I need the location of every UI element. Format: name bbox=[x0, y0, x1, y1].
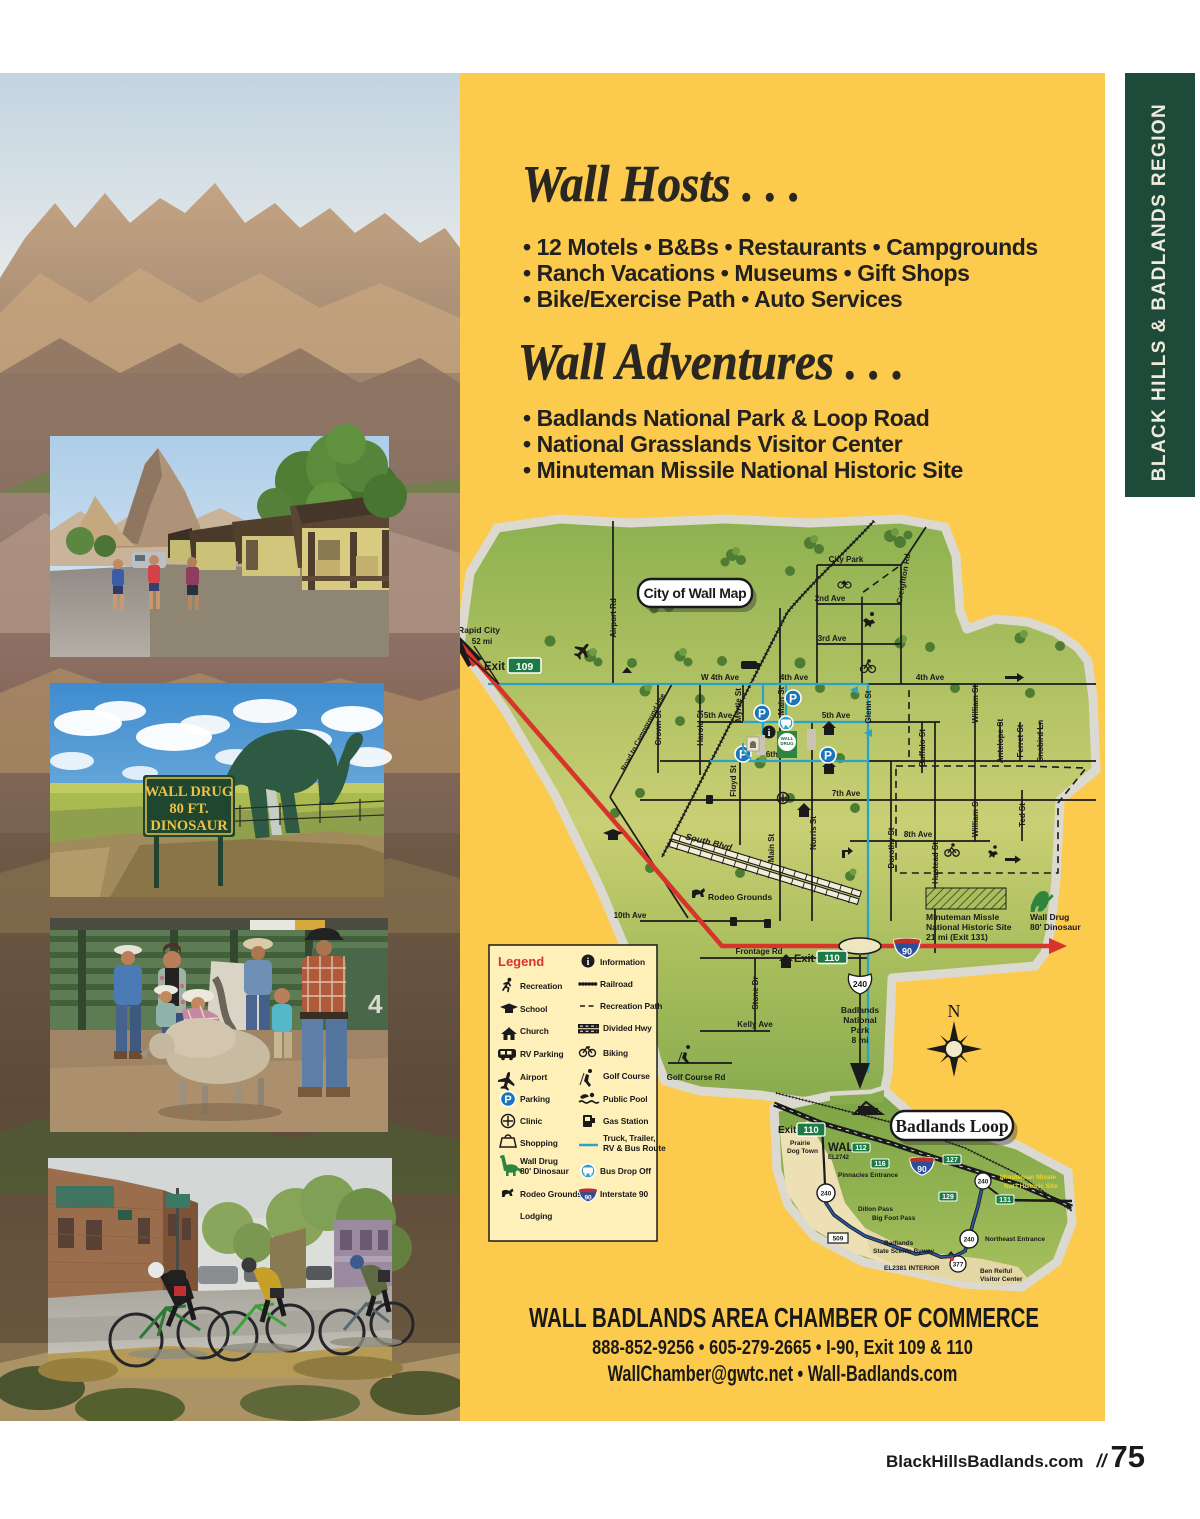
svg-text:RV Parking: RV Parking bbox=[520, 1049, 564, 1059]
svg-text:Gas Station: Gas Station bbox=[603, 1116, 648, 1126]
svg-text:Rapid City: Rapid City bbox=[460, 625, 500, 635]
svg-text:240: 240 bbox=[853, 979, 867, 989]
svg-text:Prairie: Prairie bbox=[790, 1140, 811, 1147]
svg-text:Legend: Legend bbox=[498, 954, 544, 969]
svg-text:8 mi: 8 mi bbox=[851, 1035, 868, 1045]
svg-text:Myrtle St: Myrtle St bbox=[734, 688, 743, 722]
svg-text:80' Dinosaur: 80' Dinosaur bbox=[1030, 922, 1081, 932]
svg-text:Railroad: Railroad bbox=[600, 979, 633, 989]
svg-text:4th Ave: 4th Ave bbox=[780, 673, 809, 682]
svg-text:Antelope St: Antelope St bbox=[996, 718, 1005, 763]
svg-text:Norris St: Norris St bbox=[809, 816, 818, 850]
svg-text:Golf Course: Golf Course bbox=[603, 1071, 650, 1081]
svg-text:240: 240 bbox=[978, 1179, 989, 1186]
svg-text:90: 90 bbox=[917, 1164, 927, 1174]
svg-text:Rodeo Grounds: Rodeo Grounds bbox=[708, 892, 772, 902]
svg-text:Nat'l Historic Site: Nat'l Historic Site bbox=[1004, 1183, 1058, 1190]
svg-text:Buffalo St: Buffalo St bbox=[918, 729, 927, 767]
svg-text:Frontage Rd: Frontage Rd bbox=[735, 947, 782, 956]
svg-text:State Scenic Byway: State Scenic Byway bbox=[873, 1248, 934, 1255]
svg-text:Main St: Main St bbox=[777, 686, 786, 715]
svg-text:8th Ave: 8th Ave bbox=[904, 830, 933, 839]
svg-text:Exit: Exit bbox=[778, 1125, 797, 1136]
svg-text:Rodeo Grounds: Rodeo Grounds bbox=[520, 1189, 582, 1199]
svg-text:110: 110 bbox=[803, 1125, 818, 1136]
svg-text:i: i bbox=[768, 728, 771, 739]
svg-text:Stone Dr: Stone Dr bbox=[751, 976, 760, 1009]
svg-text:127: 127 bbox=[946, 1157, 958, 1164]
svg-text:Airport: Airport bbox=[520, 1072, 548, 1082]
svg-text:Snobird Ln: Snobird Ln bbox=[1036, 720, 1045, 762]
svg-text:Bus Drop Off: Bus Drop Off bbox=[600, 1166, 651, 1176]
svg-text:377: 377 bbox=[953, 1262, 964, 1269]
svg-text:Golf Course Rd: Golf Course Rd bbox=[667, 1073, 726, 1082]
svg-text:DINOSAUR: DINOSAUR bbox=[150, 818, 228, 834]
svg-text:240: 240 bbox=[821, 1191, 832, 1198]
svg-text:Parking: Parking bbox=[520, 1094, 550, 1104]
svg-text:Kelly Ave: Kelly Ave bbox=[737, 1020, 773, 1029]
svg-text:5th Ave: 5th Ave bbox=[822, 711, 851, 720]
svg-text:Northeast Entrance: Northeast Entrance bbox=[985, 1236, 1045, 1243]
svg-text:Badlands Loop: Badlands Loop bbox=[895, 1116, 1009, 1136]
svg-text:William St: William St bbox=[971, 685, 980, 723]
svg-text:7th Ave: 7th Ave bbox=[832, 789, 861, 798]
svg-text:112: 112 bbox=[855, 1145, 866, 1152]
svg-text:240: 240 bbox=[964, 1237, 975, 1244]
svg-text:10th Ave: 10th Ave bbox=[614, 911, 647, 920]
svg-text:EL2381 INTERIOR: EL2381 INTERIOR bbox=[884, 1265, 940, 1272]
svg-text:80 FT.: 80 FT. bbox=[169, 801, 208, 817]
svg-text:3rd Ave: 3rd Ave bbox=[818, 634, 847, 643]
svg-text:WALL DRUG: WALL DRUG bbox=[145, 784, 233, 800]
svg-text:Ben Reiful: Ben Reiful bbox=[980, 1268, 1012, 1275]
svg-text:Park: Park bbox=[851, 1025, 870, 1035]
svg-text:4: 4 bbox=[368, 989, 383, 1019]
svg-text:80' Dinosaur: 80' Dinosaur bbox=[520, 1166, 570, 1176]
svg-text:Dog Town: Dog Town bbox=[787, 1148, 818, 1155]
svg-text:DRUG: DRUG bbox=[780, 741, 794, 746]
svg-text:52 mi: 52 mi bbox=[472, 637, 492, 646]
svg-text:Harold St: Harold St bbox=[696, 710, 705, 746]
svg-text:Wall Drug: Wall Drug bbox=[1030, 912, 1069, 922]
svg-text:Big Foot Pass: Big Foot Pass bbox=[872, 1215, 916, 1222]
svg-text:P: P bbox=[758, 707, 766, 721]
svg-text:Minuteman Missle: Minuteman Missle bbox=[1000, 1174, 1056, 1181]
svg-text:90: 90 bbox=[584, 1195, 592, 1202]
svg-text:RV & Bus Route: RV & Bus Route bbox=[603, 1143, 666, 1153]
svg-text:Biking: Biking bbox=[603, 1048, 628, 1058]
svg-text:509: 509 bbox=[833, 1236, 844, 1243]
svg-text:Pinnacles Entrance: Pinnacles Entrance bbox=[838, 1172, 898, 1179]
svg-text:P: P bbox=[789, 692, 797, 706]
svg-text:110: 110 bbox=[824, 953, 839, 964]
svg-text:Recreation Path: Recreation Path bbox=[600, 1001, 662, 1011]
svg-text:School: School bbox=[520, 1004, 547, 1014]
svg-text:Church: Church bbox=[520, 1026, 549, 1036]
svg-text:P: P bbox=[824, 749, 832, 763]
svg-text:EL2742: EL2742 bbox=[828, 1155, 850, 1161]
svg-text:Wall Drug: Wall Drug bbox=[520, 1156, 558, 1166]
svg-text:4th Ave: 4th Ave bbox=[916, 673, 945, 682]
svg-text:P: P bbox=[504, 1094, 511, 1106]
svg-text:Interstate 90: Interstate 90 bbox=[600, 1189, 648, 1199]
svg-text:90: 90 bbox=[902, 947, 912, 957]
svg-text:Divided Hwy: Divided Hwy bbox=[603, 1023, 652, 1033]
svg-text:National: National bbox=[843, 1015, 877, 1025]
svg-text:N: N bbox=[948, 1001, 961, 1021]
svg-text:Badlands: Badlands bbox=[884, 1240, 914, 1247]
svg-text:Dorothy St: Dorothy St bbox=[887, 827, 896, 868]
svg-text:Lodging: Lodging bbox=[520, 1211, 552, 1221]
svg-text:21 mi (Exit 131): 21 mi (Exit 131) bbox=[926, 932, 988, 942]
svg-text:William St: William St bbox=[971, 799, 980, 837]
svg-text:Truck, Trailer,: Truck, Trailer, bbox=[603, 1133, 656, 1143]
svg-text:131: 131 bbox=[999, 1197, 1011, 1204]
svg-text:Badlands: Badlands bbox=[841, 1005, 880, 1015]
svg-text:Information: Information bbox=[600, 957, 645, 967]
svg-text:Floyd St: Floyd St bbox=[729, 765, 738, 797]
svg-text:Glenn St: Glenn St bbox=[864, 690, 873, 723]
svg-text:5th Ave: 5th Ave bbox=[704, 711, 733, 720]
svg-text:Shopping: Shopping bbox=[520, 1138, 558, 1148]
svg-text:National Historic Site: National Historic Site bbox=[926, 922, 1012, 932]
svg-text:109: 109 bbox=[516, 661, 534, 673]
svg-text:129: 129 bbox=[942, 1194, 954, 1201]
svg-text:Hustead St: Hustead St bbox=[931, 842, 940, 884]
svg-text:Main St: Main St bbox=[767, 833, 776, 862]
svg-text:Clinic: Clinic bbox=[520, 1116, 543, 1126]
svg-text:Recreation: Recreation bbox=[520, 981, 562, 991]
svg-text:Ferret St: Ferret St bbox=[1016, 724, 1025, 757]
svg-text:116: 116 bbox=[874, 1161, 885, 1168]
svg-text:i: i bbox=[587, 957, 590, 968]
svg-text:W 4th Ave: W 4th Ave bbox=[701, 673, 740, 682]
svg-text:City Park: City Park bbox=[829, 555, 864, 564]
svg-text:Airport Rd: Airport Rd bbox=[609, 598, 618, 638]
svg-text:Visitor Center: Visitor Center bbox=[980, 1276, 1023, 1283]
svg-text:City of Wall Map: City of Wall Map bbox=[644, 585, 747, 601]
svg-text:2nd Ave: 2nd Ave bbox=[815, 594, 846, 603]
svg-text:Exit: Exit bbox=[794, 953, 815, 965]
svg-text:Dillon Pass: Dillon Pass bbox=[858, 1206, 893, 1213]
svg-text:Ted St: Ted St bbox=[1018, 803, 1027, 827]
svg-text:Public Pool: Public Pool bbox=[603, 1094, 648, 1104]
svg-text:Minuteman Missle: Minuteman Missle bbox=[926, 912, 999, 922]
